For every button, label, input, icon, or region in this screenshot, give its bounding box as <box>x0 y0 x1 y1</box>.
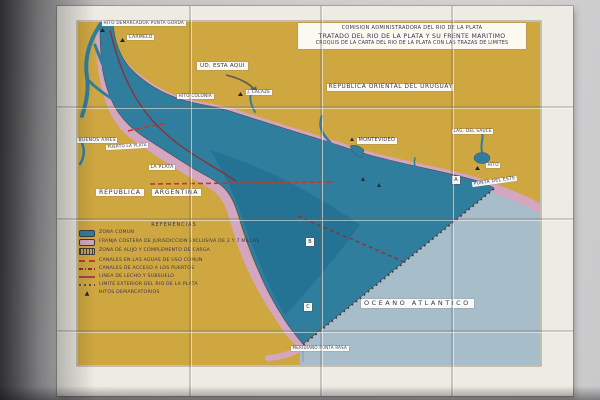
photo-tiled-map-mural: COMISION ADMINISTRADORA DEL RIO DE LA PL… <box>0 0 600 400</box>
zona-comun-swatch <box>79 230 95 237</box>
legend-item-canales-uso-comun: CANALES EN LAS AGUAS DE USO COMUN <box>79 258 269 264</box>
label-hito-punta-del-este: HITO <box>486 163 500 168</box>
label-hito-colonia: HITO COLONIA <box>177 94 214 99</box>
legend-item-limite-exterior: LIMITE EXTERIOR DEL RIO DE LA PLATA <box>79 282 269 288</box>
canales-acceso-line <box>79 268 95 270</box>
label-republica-oriental-uruguay: REPUBLICA ORIENTAL DEL URUGUAY <box>327 84 454 91</box>
title-line-croquis: CROQUIS DE LA CARTA DEL RIO DE LA PLATA … <box>300 41 524 46</box>
label-buenos-aires: BUENOS AIRES <box>77 138 117 143</box>
map-title-block: COMISION ADMINISTRADORA DEL RIO DE LA PL… <box>298 23 526 49</box>
label-punta-del-este: PUNTA DEL ESTE <box>472 176 517 188</box>
label-oceano-atlantico: OCEANO ATLANTICO <box>361 299 474 308</box>
label-puerto-la-plata: PUERTO LA PLATA <box>106 143 149 150</box>
label-you-are-here: UD. ESTA AQUI <box>197 62 248 70</box>
boundary-marker-c: C <box>304 303 312 311</box>
label-meridiano-punta-rasa: MERIDIANO PUNTA RASA <box>291 346 349 351</box>
map-labels-layer: COMISION ADMINISTRADORA DEL RIO DE LA PL… <box>0 0 600 400</box>
legend-item-zona-alijo: ZONA DE ALIJO Y COMPLEMENTO DE CARGA <box>79 248 269 255</box>
legend-title: REFERENCIAS <box>79 222 269 228</box>
label-carmelo: CARMELO <box>127 35 154 40</box>
label-republica-argentina: REPUBLICA ARGENTINA <box>96 189 201 196</box>
franja-costera-swatch <box>79 239 95 246</box>
legend-item-zona-comun: ZONA COMUN <box>79 230 269 237</box>
title-line-commission: COMISION ADMINISTRADORA DEL RIO DE LA PL… <box>300 25 524 31</box>
legend-item-lecho-subsuelo: LINEA DE LECHO Y SUBSUELO <box>79 274 269 280</box>
label-laguna-del-sauce: LAG. DEL SAUCE <box>452 129 493 134</box>
canales-uso-comun-line <box>79 260 95 262</box>
title-line-treaty: TRATADO DEL RIO DE LA PLATA Y SU FRENTE … <box>300 33 524 40</box>
label-la-plata: LA PLATA <box>149 165 175 170</box>
label-argentina: ARGENTINA <box>152 189 202 196</box>
lecho-subsuelo-line <box>79 276 95 278</box>
legend-item-franja-costera: FRANJA COSTERA DE JURISDICCION EXCLUSIVA… <box>79 239 269 246</box>
label-juan-lacaze: J. LACAZE <box>246 90 272 95</box>
map-legend: REFERENCIAS ZONA COMUN FRANJA COSTERA DE… <box>79 222 269 299</box>
label-hito-punta-gorda: HITO DEMARCADOR PUNTA GORDA <box>102 21 186 26</box>
label-montevideo: MONTEVIDEO <box>357 138 397 144</box>
legend-item-hitos: ▲ HITOS DEMARCATORIOS <box>79 290 269 297</box>
hitos-triangle-icon: ▲ <box>79 290 95 297</box>
legend-item-canales-acceso: CANALES DE ACCESO A LOS PUERTOS <box>79 266 269 272</box>
zona-alijo-swatch <box>79 248 95 255</box>
boundary-marker-b: B <box>306 238 314 246</box>
limite-exterior-line <box>79 284 95 286</box>
label-republica: REPUBLICA <box>96 189 144 196</box>
boundary-marker-a: A <box>452 176 460 184</box>
